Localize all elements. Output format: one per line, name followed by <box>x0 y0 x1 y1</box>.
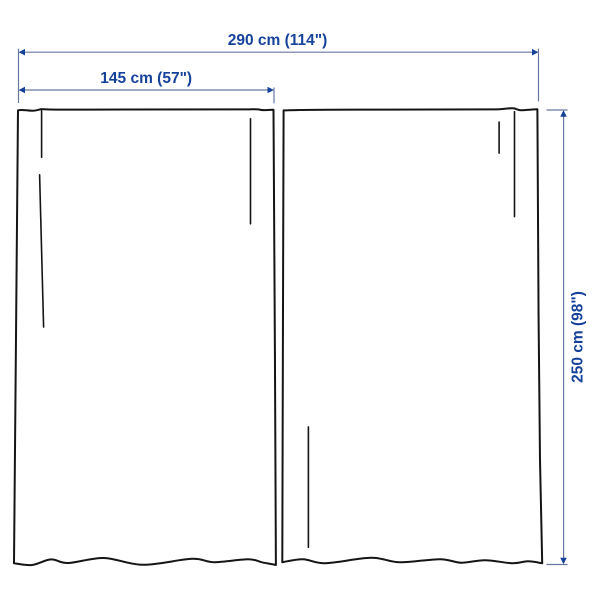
svg-text:290 cm (114"): 290 cm (114") <box>228 32 328 49</box>
svg-text:250 cm (98"): 250 cm (98") <box>570 291 587 383</box>
svg-text:145 cm (57"): 145 cm (57") <box>100 70 192 87</box>
